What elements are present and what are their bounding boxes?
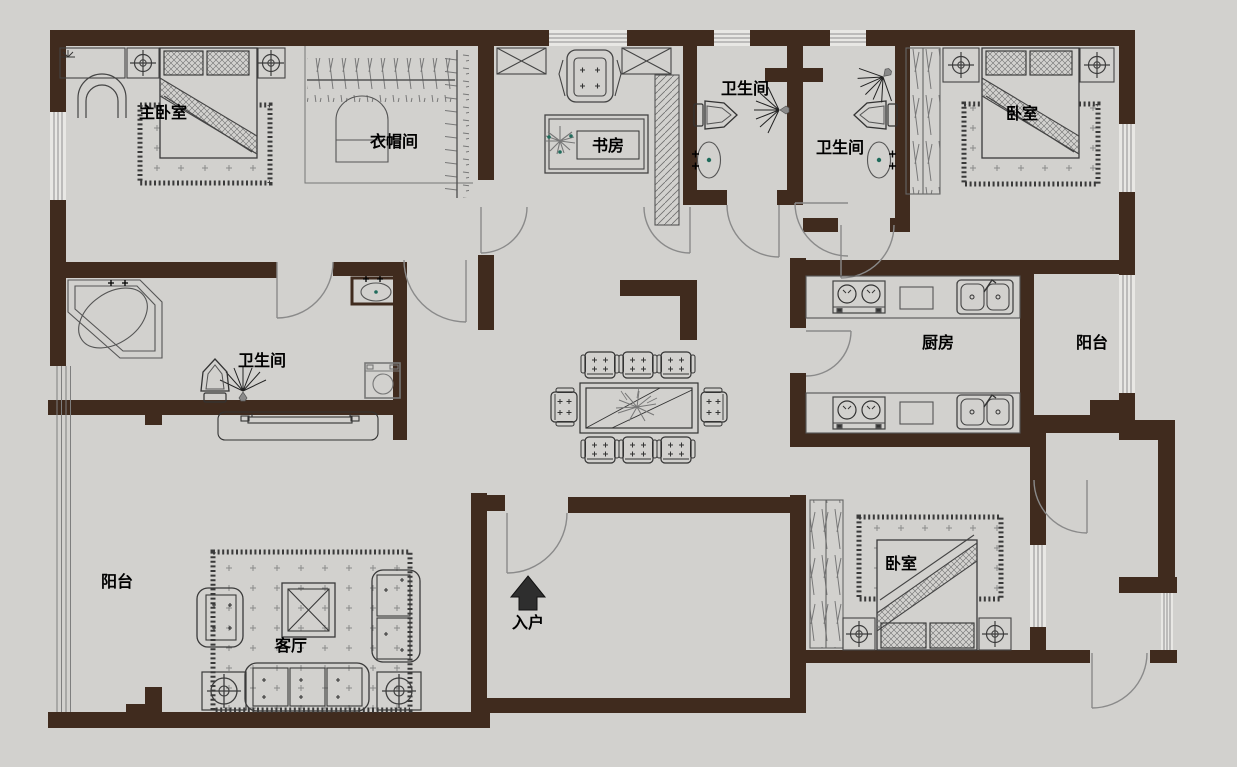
gas-stove bbox=[833, 281, 885, 313]
pillow bbox=[1030, 51, 1072, 75]
tv-console bbox=[218, 412, 378, 440]
label-bedroom-bottom: 卧室 bbox=[885, 554, 917, 573]
dining-area bbox=[551, 352, 727, 463]
door-master-bathroom bbox=[277, 262, 333, 318]
label-master-bathroom: 卫生间 bbox=[238, 351, 286, 370]
toilet bbox=[694, 101, 737, 129]
dining-chair bbox=[619, 352, 657, 378]
floor-plan-canvas: 主卧室 衣帽间 书房 卫生间 卫生间 卧室 卫生间 厨房 阳台 阳台 客厅 卧室… bbox=[0, 0, 1237, 767]
label-master-bedroom: 主卧室 bbox=[139, 103, 187, 122]
floor-plan-drawing: 主卧室 衣帽间 书房 卫生间 卫生间 卧室 卫生间 厨房 阳台 阳台 客厅 卧室… bbox=[0, 0, 1237, 767]
door-study-left bbox=[481, 207, 527, 253]
ceiling-lamp-icon bbox=[948, 52, 974, 78]
window-bottom-right bbox=[1161, 593, 1173, 650]
gas-stove bbox=[833, 397, 885, 429]
balcony-left-glazing bbox=[57, 366, 71, 712]
room-living bbox=[197, 552, 421, 711]
dining-chair bbox=[551, 388, 577, 426]
room-bathroom-1 bbox=[692, 87, 789, 178]
label-balcony-left: 阳台 bbox=[101, 572, 133, 591]
label-balcony-right: 阳台 bbox=[1076, 333, 1108, 352]
cabinet bbox=[622, 48, 671, 74]
pillow bbox=[930, 623, 974, 648]
entry-arrow-icon bbox=[511, 576, 545, 610]
pillow bbox=[881, 623, 926, 648]
desk-chair bbox=[559, 50, 621, 102]
label-bathroom-2: 卫生间 bbox=[816, 138, 864, 157]
door-exterior-bottom-right bbox=[1092, 653, 1147, 708]
label-study: 书房 bbox=[592, 136, 624, 155]
room-cloakroom bbox=[305, 46, 473, 198]
dining-chair bbox=[657, 437, 695, 463]
room-bedroom-bottom bbox=[810, 500, 1011, 650]
window-top-bath2 bbox=[830, 30, 866, 46]
label-living-room: 客厅 bbox=[275, 636, 307, 655]
dining-chair bbox=[581, 352, 619, 378]
ceiling-lamp-icon bbox=[258, 50, 284, 76]
window-top-study bbox=[549, 30, 627, 46]
ceiling-lamp-icon bbox=[846, 621, 872, 647]
door-bathroom-1 bbox=[727, 205, 779, 257]
wash-basin bbox=[868, 142, 897, 178]
room-master-bathroom bbox=[68, 276, 400, 440]
cutting-board bbox=[900, 287, 933, 309]
vanity-chair bbox=[78, 74, 126, 118]
kitchen-sink bbox=[957, 280, 1013, 314]
window-right-bedroom bbox=[1119, 124, 1135, 192]
dining-chair bbox=[581, 437, 619, 463]
entry-marker bbox=[511, 576, 545, 610]
dining-chair bbox=[701, 388, 727, 426]
window-right-balcony bbox=[1119, 275, 1135, 393]
label-cloakroom: 衣帽间 bbox=[370, 132, 418, 151]
cabinet bbox=[497, 48, 546, 74]
label-entry: 入户 bbox=[512, 613, 544, 632]
bookshelf bbox=[655, 75, 679, 225]
dresser bbox=[60, 48, 125, 78]
door-left-wing bbox=[404, 260, 466, 322]
room-study bbox=[497, 48, 679, 225]
ottoman bbox=[336, 96, 388, 162]
dining-chair bbox=[619, 437, 657, 463]
label-kitchen: 厨房 bbox=[922, 333, 954, 352]
ceiling-lamp-icon bbox=[130, 50, 156, 76]
label-bedroom-top-right: 卧室 bbox=[1006, 104, 1038, 123]
door-entry bbox=[507, 513, 567, 573]
door-kitchen bbox=[806, 331, 851, 376]
toilet bbox=[201, 359, 229, 402]
pillow bbox=[986, 51, 1026, 75]
window-left-master-bedroom bbox=[50, 112, 66, 200]
label-bathroom-1: 卫生间 bbox=[721, 79, 769, 98]
cutting-board bbox=[900, 402, 933, 424]
toilet bbox=[854, 101, 897, 129]
window-bedroom-bottom bbox=[1030, 545, 1046, 627]
ceiling-lamp-icon bbox=[982, 621, 1008, 647]
room-kitchen bbox=[806, 276, 1020, 433]
kitchen-sink bbox=[957, 395, 1013, 429]
corner-bathtub bbox=[68, 276, 162, 361]
pillow bbox=[164, 51, 203, 75]
dining-chair bbox=[657, 352, 695, 378]
ceiling-lamp-icon bbox=[1084, 52, 1110, 78]
basin-counter bbox=[352, 276, 400, 304]
pillow bbox=[207, 51, 249, 75]
window-top-bath1 bbox=[714, 30, 750, 46]
